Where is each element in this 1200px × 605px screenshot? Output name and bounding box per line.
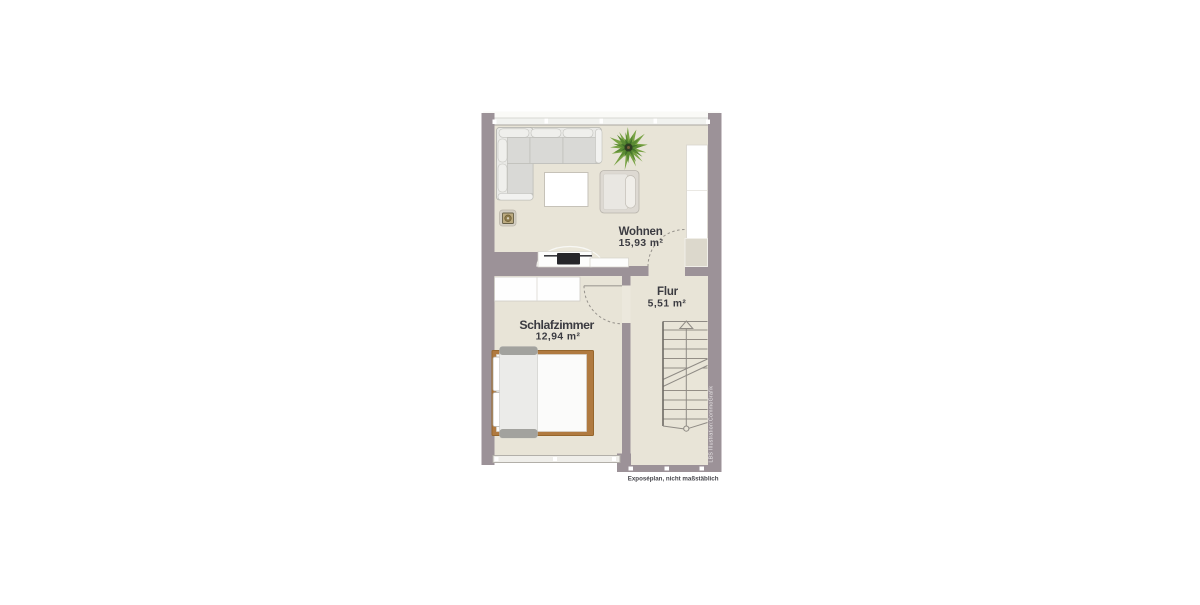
svg-text:Flur: Flur — [657, 286, 679, 298]
svg-text:Schlafzimmer: Schlafzimmer — [519, 318, 594, 332]
svg-text:LBS Illustration:CommoGrafik: LBS Illustration:CommoGrafik — [709, 386, 715, 463]
svg-text:5,51 m²: 5,51 m² — [648, 298, 687, 309]
svg-text:Wohnen: Wohnen — [619, 226, 663, 238]
svg-text:Exposéplan, nicht maßstäblich: Exposéplan, nicht maßstäblich — [628, 475, 719, 482]
svg-text:15,93 m²: 15,93 m² — [619, 238, 664, 249]
svg-text:12,94 m²: 12,94 m² — [536, 332, 581, 343]
